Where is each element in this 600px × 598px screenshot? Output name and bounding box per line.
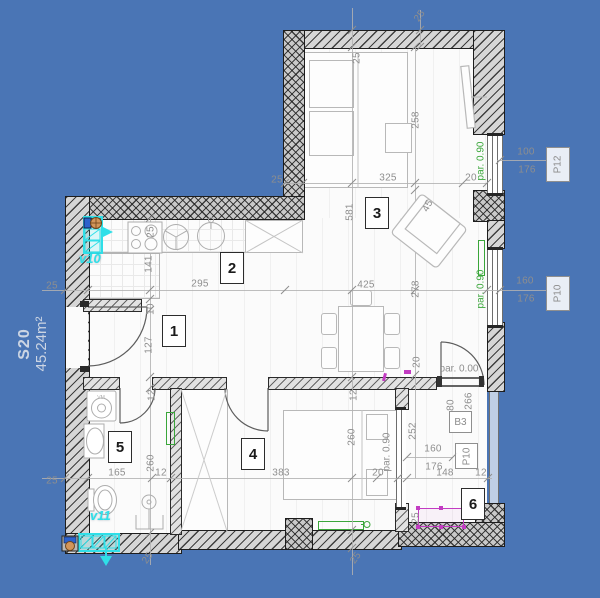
dim-label: 25 xyxy=(146,226,157,238)
dim-label: 252 xyxy=(408,422,419,440)
apartment-title: S20 45.24m² xyxy=(16,279,62,409)
dim-label: 176 xyxy=(425,462,443,473)
dim-label: 10 xyxy=(146,303,157,315)
selection-handles[interactable] xyxy=(416,506,466,529)
window-tag-P10: P10 xyxy=(546,276,570,311)
room-label-6: 6 xyxy=(461,488,485,520)
door-jamb xyxy=(479,376,484,387)
radiator-valve xyxy=(361,522,370,528)
washing-machine: VM xyxy=(87,391,116,421)
entry-door xyxy=(88,307,147,366)
window-tag-text: P12 xyxy=(552,156,563,174)
dim-label: 25 xyxy=(352,52,363,64)
bathroom-sink xyxy=(84,424,104,458)
vent-label-v10: v10 xyxy=(79,251,101,266)
dim-label: 160 xyxy=(424,444,442,455)
dim-label: 278 xyxy=(411,280,422,298)
vent-label-v11: v11 xyxy=(90,508,111,523)
dim-label: 141 xyxy=(144,255,155,273)
magenta-mark xyxy=(382,373,387,382)
door-jamb xyxy=(437,376,442,387)
dim-label: 325 xyxy=(379,173,397,184)
window-tag-P10: P10 xyxy=(455,443,478,469)
dim-label: 25 xyxy=(271,175,283,186)
bedroom-door xyxy=(225,388,268,431)
apartment-code: S20 xyxy=(16,279,34,409)
dim-label: 165 xyxy=(108,468,126,479)
door-jamb xyxy=(80,301,89,307)
dim-label: 383 xyxy=(272,468,290,479)
dim-label: 176 xyxy=(517,294,535,305)
dim-label: 160 xyxy=(516,276,534,287)
dim-label: 12 xyxy=(147,389,158,401)
dim-label: 25 xyxy=(46,281,58,292)
window-tag-P12: P12 xyxy=(546,147,570,182)
window-tag-text: B3 xyxy=(454,417,466,428)
window-tag-B3: B3 xyxy=(449,411,472,433)
svg-text:VM: VM xyxy=(97,395,105,401)
kitchen-sink xyxy=(198,218,225,250)
floor-plan: S20 45.24m² xyxy=(0,0,600,598)
dim-label: 260 xyxy=(146,454,157,472)
dim-label: 127 xyxy=(144,336,155,354)
apartment-area: 45.24m² xyxy=(34,279,51,409)
dim-label: 258 xyxy=(411,111,422,129)
dim-label: 12 xyxy=(349,389,360,401)
dim-label: 295 xyxy=(191,279,209,290)
room-label-4: 4 xyxy=(241,438,265,470)
dim-label: 176 xyxy=(518,165,536,176)
window-tag-text: P10 xyxy=(552,285,563,303)
dim-label: 260 xyxy=(347,428,358,446)
window-tag-text: P10 xyxy=(461,447,472,465)
vent-v10-icons xyxy=(84,218,113,253)
dim-label: 100 xyxy=(517,147,535,158)
parapet-label: par. 0.90 xyxy=(382,433,393,472)
dim-label: 425 xyxy=(357,280,375,291)
room-label-5: 5 xyxy=(108,431,132,463)
room-label-2: 2 xyxy=(220,252,244,284)
dim-label: 25 xyxy=(411,512,422,524)
dim-label: 80 xyxy=(446,399,457,411)
door-jamb xyxy=(80,366,89,372)
dim-label: 20 xyxy=(412,356,423,368)
dim-label: 25 xyxy=(46,476,58,487)
parapet-label: par. 0.90 xyxy=(476,270,487,309)
parapet-label: par. 0.90 xyxy=(476,142,487,181)
room-label-1: 1 xyxy=(162,315,186,347)
magenta-mark xyxy=(404,370,411,374)
room-label-3: 3 xyxy=(365,197,389,229)
dim-label: 581 xyxy=(345,203,356,221)
dim-label: 12 xyxy=(475,468,487,479)
fridge-x-mark xyxy=(245,220,303,253)
shower xyxy=(136,495,163,529)
tv xyxy=(461,66,487,128)
vent-v11-icons xyxy=(62,536,116,566)
wardrobe-x-mark xyxy=(181,389,227,531)
extractor-fan xyxy=(164,225,189,250)
dim-label: 266 xyxy=(464,392,475,410)
dim-label: 12 xyxy=(155,468,167,479)
parapet-label: par. 0.00 xyxy=(440,364,479,375)
